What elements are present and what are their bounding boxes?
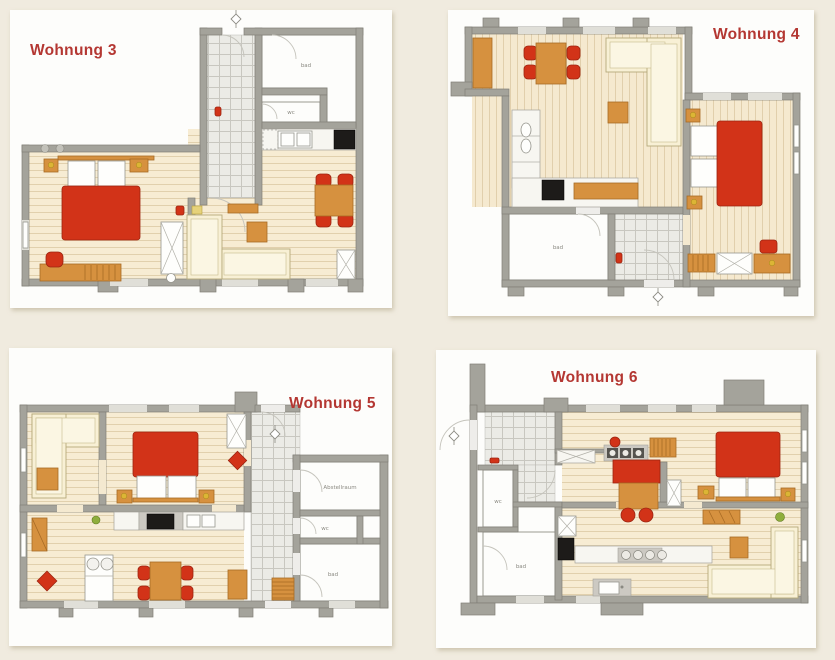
double-bed <box>716 432 780 501</box>
dining-table <box>619 483 658 509</box>
plan-title: Wohnung 4 <box>713 26 800 43</box>
pillow <box>137 476 166 500</box>
pillow <box>168 476 196 500</box>
radiator <box>21 448 26 472</box>
flower-icon <box>769 260 775 266</box>
wardrobe <box>717 253 752 274</box>
hall-cabinet <box>667 480 681 506</box>
floorplan-sheet: Wohnung 3 bad wc <box>0 0 835 660</box>
sink-icon <box>521 123 531 137</box>
sink-icon <box>599 582 619 594</box>
wall-fixture <box>490 458 499 463</box>
kitchen <box>114 512 244 530</box>
drawer-unit <box>688 254 715 272</box>
cooktop-icon <box>147 514 174 529</box>
plan-title: Wohnung 6 <box>551 369 638 386</box>
coffee-table <box>247 222 267 242</box>
kitchen-tall-units <box>558 516 576 560</box>
chair <box>138 566 150 580</box>
coffee-table <box>730 537 748 558</box>
radiator <box>802 540 807 562</box>
magazine <box>192 206 202 214</box>
duvet <box>717 121 762 206</box>
chair <box>524 46 537 60</box>
wardrobe <box>227 414 246 448</box>
bench <box>703 510 740 524</box>
sideboard <box>228 204 258 213</box>
hallway-floor <box>251 412 300 601</box>
flower-icon <box>121 493 127 499</box>
pot-icon <box>610 437 620 447</box>
radiator <box>794 125 799 147</box>
room-label-bad: bad <box>553 245 563 251</box>
duvet <box>62 186 140 240</box>
sideboard <box>473 38 492 88</box>
cushion <box>46 252 63 267</box>
plan-title: Wohnung 3 <box>30 42 117 59</box>
plant-icon <box>776 513 785 522</box>
tall-cabinet <box>228 570 247 599</box>
pillow <box>719 478 746 497</box>
kitchen-sideboard <box>574 183 638 199</box>
coffee-table <box>608 102 628 123</box>
sink-icon <box>187 515 200 527</box>
chair <box>524 65 537 79</box>
room-label-bad: bad <box>328 572 338 578</box>
dining-table <box>150 562 181 600</box>
radiator <box>794 152 799 174</box>
red-chair <box>760 240 777 253</box>
room-label-bad: bad <box>301 63 311 69</box>
room-label-wc: wc <box>494 499 502 505</box>
radiator <box>23 222 28 248</box>
floor-lamp-icon <box>167 274 176 283</box>
radiator <box>802 462 807 484</box>
flower-icon <box>48 162 54 168</box>
room-label-bad: bad <box>516 564 526 570</box>
cooktop-icon <box>542 180 564 200</box>
room-label-storage: Abstellraum <box>323 485 356 491</box>
radiator <box>21 533 26 557</box>
plan-title: Wohnung 5 <box>289 395 376 412</box>
hallway-floor <box>485 412 555 465</box>
bathroom-floor <box>300 544 380 601</box>
wardrobe <box>161 222 183 283</box>
pillow <box>691 159 718 187</box>
sink-icon <box>281 133 294 146</box>
dining-table <box>536 43 566 84</box>
chair <box>181 566 193 580</box>
flower-icon <box>136 162 142 168</box>
plant-icon <box>92 516 100 524</box>
sink-console <box>593 579 631 596</box>
chair <box>138 586 150 600</box>
red-cushion <box>176 206 184 215</box>
room-label-wc: wc <box>321 526 329 532</box>
oven-icon <box>558 538 574 560</box>
chair <box>639 508 653 522</box>
flower-icon <box>203 493 209 499</box>
pillow <box>68 161 95 186</box>
stairs <box>272 578 294 600</box>
chair <box>181 586 193 600</box>
room-label-wc: wc <box>287 110 295 116</box>
flower-icon <box>691 199 697 205</box>
side-table <box>37 468 58 490</box>
wall-fixture <box>616 253 622 263</box>
radiator <box>802 430 807 452</box>
flower-icon <box>785 491 791 497</box>
washer-dryer <box>85 555 113 601</box>
flower-icon <box>703 489 709 495</box>
pillow <box>748 478 775 497</box>
pillow <box>98 161 125 186</box>
pillow <box>691 126 718 156</box>
duvet <box>716 432 780 477</box>
cooktop-icon <box>334 130 355 149</box>
flower-icon <box>690 112 696 118</box>
slatted-shelf <box>650 438 676 457</box>
double-bed <box>133 432 198 502</box>
dining-table <box>315 185 353 216</box>
kitchen-island <box>575 546 712 563</box>
kitchen <box>262 129 356 150</box>
chair <box>567 65 580 79</box>
chair <box>567 46 580 60</box>
chair <box>621 508 635 522</box>
tall-cabinet <box>337 250 355 279</box>
open-wardrobe <box>32 518 47 551</box>
floorplans-canvas: Wohnung 3 bad wc <box>0 0 835 660</box>
wall-fixture <box>215 107 221 116</box>
duvet <box>133 432 198 477</box>
dining-table-red <box>613 460 660 483</box>
hallway-floor <box>207 35 255 198</box>
